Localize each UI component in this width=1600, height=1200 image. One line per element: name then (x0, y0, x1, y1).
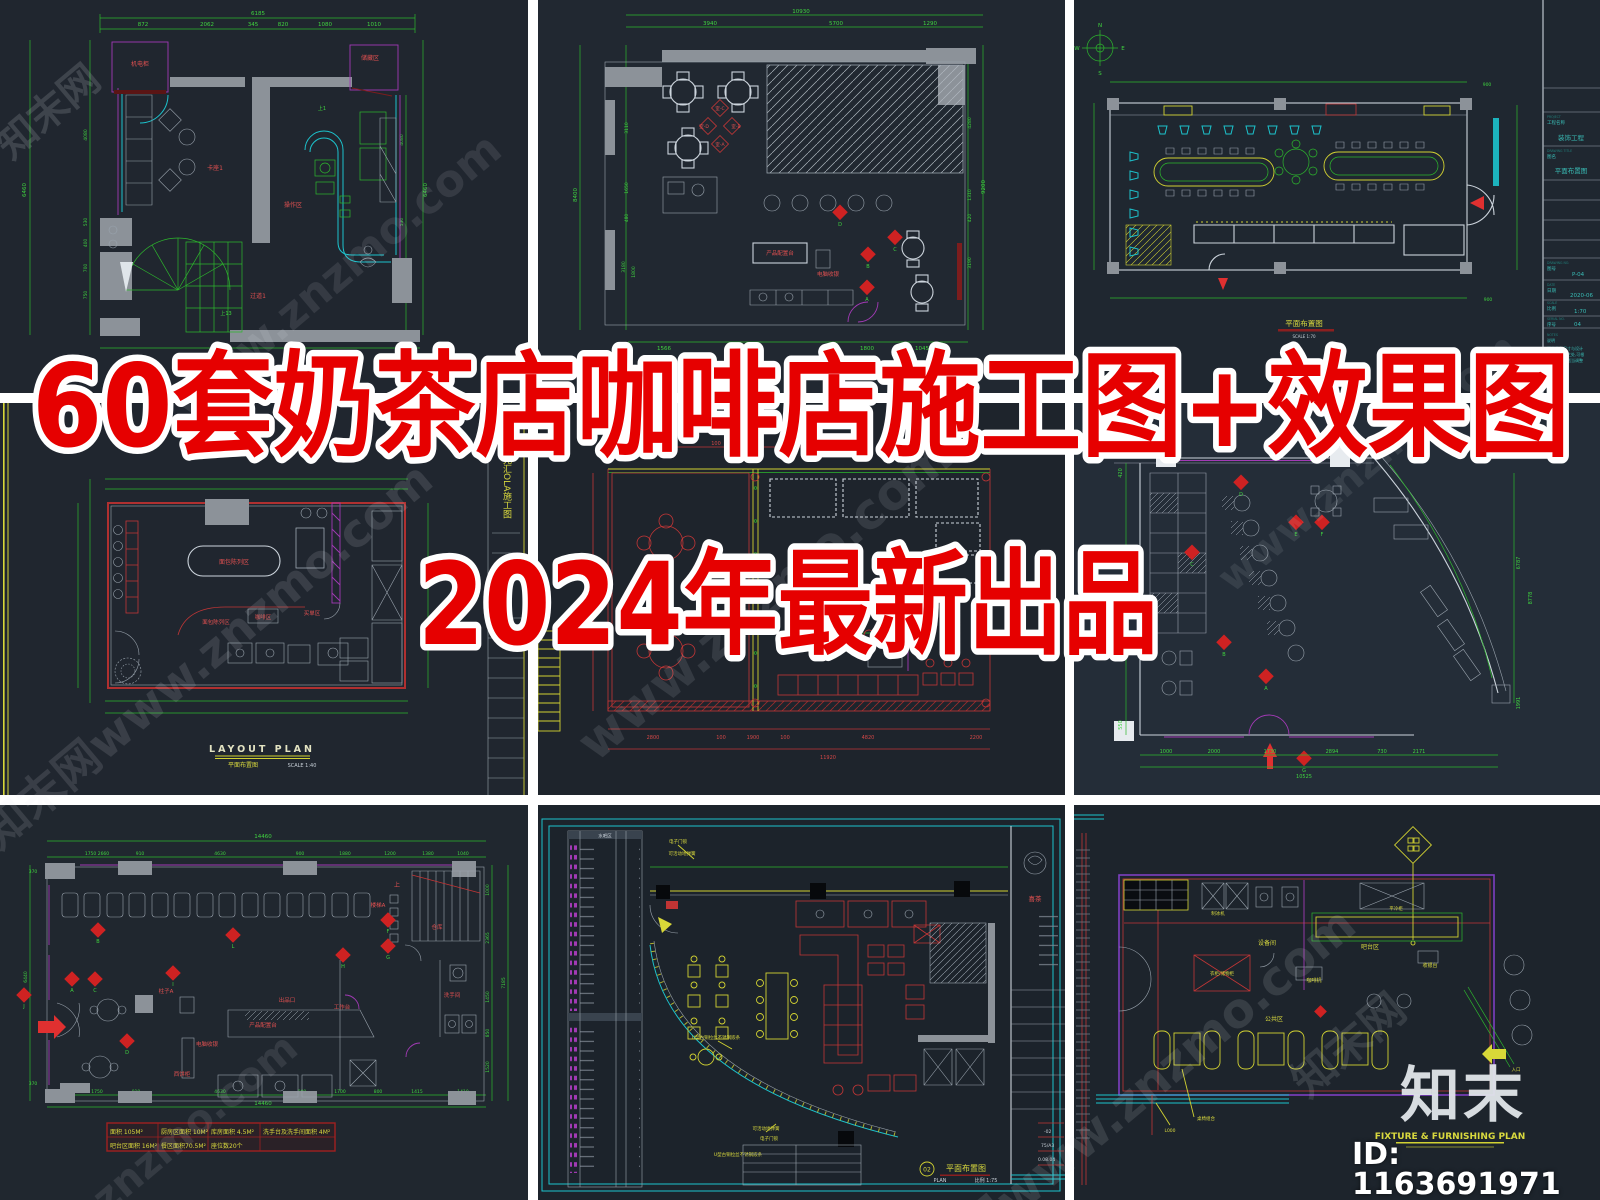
p3-long-tables (1154, 140, 1444, 196)
p9-label-coffee: 咖啡机 (1306, 977, 1321, 984)
p4-title-cn: 平面布置图 (228, 761, 258, 769)
p2-service-area (663, 177, 892, 322)
p3-plan-scale-text: SCALE 1:70 (1292, 334, 1316, 339)
p6-dim: 1991 (1516, 697, 1522, 710)
cad-panel-5-floorplan: 3040 100 900 2800 100 1900 100 4820 2200… (538, 403, 1065, 795)
p5-dim: 1900 (747, 735, 760, 741)
p3-block-caption: NOTES (1547, 333, 1558, 337)
p1-person-icon (360, 246, 376, 267)
p7-label-work: 工作台 (334, 1003, 351, 1011)
p9-label-l000: L000 (1164, 1128, 1175, 1134)
p1-spiral-stair (126, 238, 242, 332)
p7-marker-letter: C (93, 988, 97, 994)
p3-plan-title-text: 平面布置图 (1285, 318, 1323, 328)
p4-side-vertical-text: 光汇OLA施工图 (501, 454, 512, 519)
p3-notes: 及现状矛盾之处,可根 (1547, 351, 1584, 357)
p2-dim: 1566 (657, 346, 671, 352)
p8-sheet-title: 02 平面布置图 PLAN 比例 1:75 (920, 1162, 997, 1184)
p7-dim: 1880 (339, 851, 351, 857)
p1-label-booth: 卡座1 (207, 164, 223, 172)
p7-dim: 1200 (384, 851, 396, 857)
promo-collage-canvas: 6185 872 2062 345 820 1080 1010 6460 408… (0, 0, 1600, 1200)
p6-marker-letter: D (1239, 492, 1243, 498)
p2-dim: 1800 (860, 346, 874, 352)
p3-title-block: PROJECT 工程名称 装饰工程 DRAWING TITLE 图名 平面布置图… (1543, 0, 1600, 393)
cad-panel-8-floorplan: 水吧区 (538, 805, 1065, 1200)
p5-dim: 900 (823, 441, 833, 447)
p3-block-value-no: P-04 (1572, 272, 1585, 278)
p4-sheet-title: LAYOUT PLAN 平面布置图 SCALE 1:40 (209, 744, 316, 769)
p1-label-aisle: 过道1 (250, 292, 266, 300)
p5-dim-total: 11920 (820, 755, 836, 761)
p2-label-counter: 产品配置台 (766, 249, 794, 257)
p4-fixtures (114, 508, 403, 683)
p8-list-header: 水吧区 (598, 833, 612, 840)
p9-label-cold: 平冷柜 (1389, 905, 1403, 912)
p2-dim: 9200 (981, 180, 987, 194)
p7-marker-letter: F (387, 929, 390, 935)
p7-dim: 1750 2660 (85, 851, 109, 857)
p7-label-stairs: 楼梯A (371, 901, 386, 909)
p8-label: 可活动地弹簧 (753, 1125, 780, 1132)
p7-marker-letter: J (22, 1004, 24, 1010)
p8-block-item: -02 (1044, 1129, 1051, 1135)
p8-title-en: PLAN (933, 1178, 946, 1184)
p3-compass-w: W (1074, 46, 1080, 52)
p7-marker-letter: I (172, 982, 173, 988)
p8-yellow-seating (688, 956, 798, 1065)
p7-dim: 900 (296, 851, 305, 857)
p7-dim: 6440 (23, 971, 29, 983)
p3-block-value-scale: 1:70 (1574, 309, 1587, 315)
p2-dim: 420 (967, 214, 973, 223)
p3-compass-e: E (1121, 46, 1125, 52)
p1-label-mech: 机电柜 (131, 60, 149, 68)
p4-walls (108, 499, 405, 688)
p9-label-wardrobe: 衣柜/储物柜 (1210, 970, 1235, 977)
p8-title-no: 02 (923, 1167, 931, 1174)
p7-label-cashier: 电脑收银 (196, 1040, 219, 1048)
p9-label-ice: 制冰机 (1211, 910, 1225, 917)
p6-dim: 2000 (1208, 749, 1221, 755)
p7-dim: 1380 (422, 851, 434, 857)
p3-block-label: 图号 (1547, 266, 1556, 272)
p7-dim: 4630 (214, 1089, 226, 1095)
p8-title-cn: 平面布置图 (946, 1163, 986, 1173)
p2-dim: 8400 (573, 188, 579, 202)
p3-dim: 900 (1483, 82, 1492, 88)
p7-dim: 1450 (485, 991, 491, 1003)
p8-mini-table (743, 1145, 861, 1185)
p5-dim: 3040 (647, 441, 660, 447)
p3-block-label: 比例 (1547, 305, 1556, 312)
p1-label-up1: 上1 (318, 105, 326, 112)
p2-room-label: 室-D (699, 123, 709, 130)
p1-dim: 750 (83, 291, 89, 300)
p7-label-cake: 西饼柜 (174, 1070, 191, 1078)
p1-dim: 400 (83, 239, 89, 248)
p6-marker-letter: C (1190, 562, 1194, 568)
p6-dim: 2171 (1413, 749, 1426, 755)
p6-marker-letter: B (1222, 652, 1226, 658)
p4-label-bread1: 面包陈列区 (219, 558, 249, 566)
p8-label: 电子门锁 (760, 1135, 778, 1142)
p1-dim: 345 (248, 22, 259, 28)
p5-kitchen (778, 585, 973, 695)
p7-marker-letter: D (125, 1050, 129, 1056)
p3-block-caption: PROJECT (1547, 115, 1561, 119)
p9-label-device: 设备间 (1258, 939, 1276, 947)
p2-dim: 3940 (703, 21, 717, 27)
p1-label-work: 操作区 (284, 201, 302, 209)
p2-label-cashier: 电脑收银 (817, 270, 840, 278)
p1-dim: 6460 (22, 183, 28, 197)
p4-label-bread2: 面包陈列区 (202, 618, 230, 626)
p2-dim: 1800 (631, 266, 637, 278)
p2-marker-letter: B (866, 264, 870, 270)
p1-label-up13: 上13 (220, 310, 231, 317)
p6-entry (1249, 715, 1289, 769)
cad-panel-3-floorplan: N S W E (1074, 0, 1600, 393)
p5-dimension-text: 3040 100 900 2800 100 1900 100 4820 2200… (591, 441, 990, 761)
p1-dim: 1010 (367, 22, 381, 28)
p1-dim: 700 (83, 264, 89, 273)
p8-plan (650, 867, 1008, 1147)
p3-notes: 图中若有尺寸与设计 (1547, 345, 1583, 351)
p3-block-label: 图名 (1547, 153, 1556, 160)
p2-dimension-lines (580, 15, 983, 342)
p7-dim: 800 (374, 1089, 383, 1095)
p7-area-table: 面积 105M² 厨房区面积 10M² 库房面积 4.5M² 洗手台及洗手间面积… (107, 1123, 335, 1151)
p7-marker-letter: B (96, 939, 100, 945)
p7-dim-bottom: 770 1750 910 4630 900 1700 800 1415 1410… (47, 1089, 486, 1107)
p3-block-value-title: 平面布置图 (1555, 166, 1588, 175)
p5-dashed-booths (770, 479, 980, 583)
p8-equipment-list-table: 水吧区 (568, 831, 642, 1187)
p7-dim: 7185 (501, 977, 507, 989)
p7-dim: 1040 (457, 851, 469, 857)
p7-label-counter: 产品配置台 (249, 1021, 277, 1029)
p6-dim-total: 10525 (1296, 774, 1312, 780)
p6-dim: 420 (1118, 468, 1124, 478)
p2-dim: 1290 (923, 21, 937, 27)
p2-dim: 10930 (792, 9, 810, 15)
p7-area-cell: 库房面积 4.5M² (211, 1128, 255, 1136)
p4-title-scale: SCALE 1:40 (288, 763, 317, 769)
p6-furniture (1150, 473, 1428, 695)
p3-block-caption: DRAWING NO. (1547, 261, 1569, 265)
p8-title-scale: 比例 1:75 (975, 1177, 998, 1184)
p7-area-cell: 厨房区面积 10M² (161, 1128, 209, 1136)
p4-dimension-lines (78, 479, 428, 713)
p7-dim: 2365 (485, 932, 491, 944)
p3-plan (1094, 82, 1517, 298)
p9-logo-diamond (1395, 827, 1432, 945)
p7-dim: 1750 (91, 1089, 103, 1095)
p2-room-diamonds: 室-C 室-D 室-B 室-A (699, 100, 740, 153)
p6-dim: 730 (1377, 749, 1387, 755)
p7-area-cell: 面积 105M² (110, 1128, 144, 1136)
p5-dim: 4820 (862, 735, 875, 741)
p8-brand: 喜茶 (1029, 894, 1043, 903)
p8-title-block: 喜茶 -02 75/A3 0.08.04 (1011, 826, 1065, 1184)
p2-marker-letter: C (893, 247, 897, 253)
p7-dim: 1520 (485, 1061, 491, 1073)
p7-marker-letter: L (232, 944, 235, 950)
p3-block-value-serial: 04 (1574, 322, 1581, 328)
p8-kitchen-red (796, 901, 940, 1095)
p1-bar-counter (305, 112, 396, 262)
p3-block-label: 工程名称 (1547, 119, 1565, 126)
p6-dimension-text: 1000 2000 1730 2894 730 2171 10525 6787 … (1118, 463, 1534, 780)
p3-compass-n: N (1098, 23, 1102, 29)
p7-dim: 370 (29, 1081, 38, 1087)
p5-dim: 2200 (970, 735, 983, 741)
p7-labels: 上 楼梯A 仓库 柱子A 出品口 工作台 产品配置台 电脑收银 西饼柜 洗手间 (159, 881, 461, 1078)
p2-dim: 5700 (829, 21, 843, 27)
p7-dim: 1415 (411, 1089, 423, 1095)
p3-block-caption: DATE (1547, 283, 1555, 287)
p2-dim: 3180 (621, 261, 627, 273)
p2-dim: 1650 (624, 182, 630, 194)
p3-compass-s: S (1098, 71, 1102, 77)
znzmo-logo: 知末 (1400, 1066, 1526, 1126)
p6-marker-letter: A (1264, 686, 1268, 692)
p4-yellow-margin-line (3, 403, 5, 795)
p7-walls (38, 861, 484, 1105)
p2-marker-letter: A (865, 297, 869, 303)
p8-label: U型古铜拉丝不锈钢嵌条 (714, 1151, 763, 1158)
cad-panel-6-floorplan: D C B A E F G 1000 2000 (1074, 403, 1600, 795)
p7-label-up: 上 (394, 881, 400, 889)
p1-dim: 6460 (423, 183, 429, 197)
p1-dim: 6185 (251, 11, 265, 17)
p4-label-coffee: 咖啡区 (255, 613, 272, 621)
p7-marker-letter: H (341, 964, 345, 970)
p5-dim: 100 (711, 441, 721, 447)
p8-label: U型古铜拉丝不锈钢嵌条 (692, 1034, 741, 1041)
p4-yellow-margin-line2 (8, 403, 9, 795)
p3-block-caption: SCALE (1547, 301, 1557, 305)
p6-dim: 2652 (1118, 647, 1124, 660)
p6-marker-letter: F (1321, 532, 1324, 538)
p1-dim: 4080 (83, 129, 89, 141)
p2-dim: 4280 (967, 117, 973, 129)
p2-walls (605, 48, 976, 325)
p7-area-cell: 吧台区面积 16M² (110, 1142, 158, 1150)
p1-booth-seating (126, 95, 195, 205)
p9-label-bar: 吧台区 (1361, 943, 1379, 951)
p5-flower-tables (637, 473, 990, 707)
p9-label-cashier: 收银台 (1422, 962, 1437, 969)
p6-dim: 1000 (1160, 749, 1173, 755)
p5-dim: 2800 (647, 735, 660, 741)
p7-area-cell: 洗手台及洗手间面积 4M² (263, 1128, 331, 1136)
resource-id-badge: ID: 1163691971 (1352, 1140, 1600, 1200)
p9-sofa-sets (1154, 1031, 1388, 1069)
p2-dim: 3110 (624, 122, 630, 134)
p6-dim: 2894 (1326, 749, 1339, 755)
p7-dim: 14460 (254, 834, 272, 840)
p7-dim: 370 (29, 869, 38, 875)
p6-dim: 550 (1118, 720, 1124, 730)
p7-dim-top: 14460 1750 2660 910 4630 900 1880 1200 1… (47, 834, 486, 857)
p3-plan-title: 平面布置图 SCALE 1:70 (1278, 318, 1334, 339)
p1-label-storage: 储藏区 (361, 54, 379, 62)
p7-marker-letter: A (70, 988, 74, 994)
p3-block-value-project: 装饰工程 (1558, 133, 1585, 142)
p9-left-strip (1074, 815, 1104, 1185)
p8-label: 电子门锁 (669, 838, 687, 845)
p5-dim: 100 (716, 735, 726, 741)
p6-dim: 8778 (1528, 592, 1534, 605)
p3-notes-label: 说明 (1547, 337, 1555, 343)
p3-block-label: 日期 (1547, 288, 1556, 294)
p6-dim: 1730 (1264, 749, 1277, 755)
p8-label: 可活动地弹簧 (669, 850, 696, 857)
p2-room-label: 室-C (715, 105, 724, 112)
p5-left-list-fragment (538, 631, 560, 731)
p4-title-en: LAYOUT PLAN (209, 744, 315, 755)
p9-label-set: 桌椅组合 (1197, 1115, 1215, 1122)
p7-dim: 910 (136, 851, 145, 857)
p1-dim: 2062 (200, 22, 214, 28)
p4-title-block: 光汇OLA施工图 (488, 403, 524, 795)
p7-dim: 850 (485, 1029, 491, 1038)
p2-room-label: 室-A (715, 141, 725, 148)
p6-dim: 6787 (1516, 557, 1522, 570)
p7-area-cell: 餐区面积70.5M² (161, 1142, 207, 1150)
p3-block-label: 序号 (1547, 321, 1556, 328)
p7-dim: 1000 (485, 884, 491, 896)
p3-notes: 据现场情况适当调整 (1547, 357, 1583, 363)
p7-dim: 4630 (214, 851, 226, 857)
p2-marker-letter: D (838, 222, 842, 228)
p2-dim: 1310 (967, 189, 973, 201)
p7-label-pillar: 柱子A (159, 987, 174, 995)
p2-markers: D C B A (832, 205, 903, 303)
p9-fixtures (1124, 880, 1462, 1018)
p5-dim: 100 (780, 735, 790, 741)
p3-dim: 900 (1484, 297, 1493, 303)
p2-dim: 1045 (915, 346, 929, 352)
p4-label-pay: 买单区 (304, 609, 321, 617)
p8-block-item: 75/A3 (1041, 1143, 1054, 1149)
p7-label-serve: 出品口 (279, 996, 296, 1004)
p8-right-rooms (918, 923, 995, 1085)
p3-compass-icon: N S W E (1074, 23, 1125, 77)
p5-dim-left: 2300 (591, 637, 597, 650)
p8-block-item: 0.08.04 (1038, 1157, 1055, 1163)
p7-label-wc: 洗手间 (444, 991, 461, 999)
p1-dim: 820 (278, 22, 289, 28)
p7-markers: B L F G H I A C D J (16, 912, 396, 1056)
p1-dim: 530 (83, 218, 89, 227)
cad-panel-2-floorplan: 10930 3940 5700 1290 8400 3110 1650 480 … (538, 0, 1065, 393)
p7-label-store: 仓库 (431, 923, 443, 931)
p1-dim: 872 (138, 22, 149, 28)
cad-panel-4-layout-plan: 面包陈列区 面包陈列区 咖啡区 买单区 LAYOUT PLAN 平面布置图 SC… (0, 403, 528, 795)
p7-dim: 14460 (254, 1101, 272, 1107)
p7-marker-letter: G (386, 955, 390, 961)
p3-block-caption: DRAWING TITLE (1547, 149, 1572, 153)
p1-dim: 1080 (318, 22, 332, 28)
p3-block-caption: SERIAL NO. (1547, 317, 1565, 321)
p3-block-value-date: 2020-06 (1570, 293, 1593, 299)
cad-panel-1-floorplan: 6185 872 2062 345 820 1080 1010 6460 408… (0, 0, 528, 393)
p9-label-public: 公共区 (1265, 1015, 1283, 1023)
p2-dim: 3190 (967, 257, 973, 269)
p2-room-label: 室-B (731, 123, 740, 130)
p7-area-cell: 座位数20个 (211, 1142, 243, 1150)
cad-panel-7-floorplan: 14460 1750 2660 910 4630 900 1880 1200 1… (0, 805, 528, 1200)
p6-marker-letter: E (1294, 532, 1297, 538)
p2-dim: 480 (624, 214, 630, 223)
